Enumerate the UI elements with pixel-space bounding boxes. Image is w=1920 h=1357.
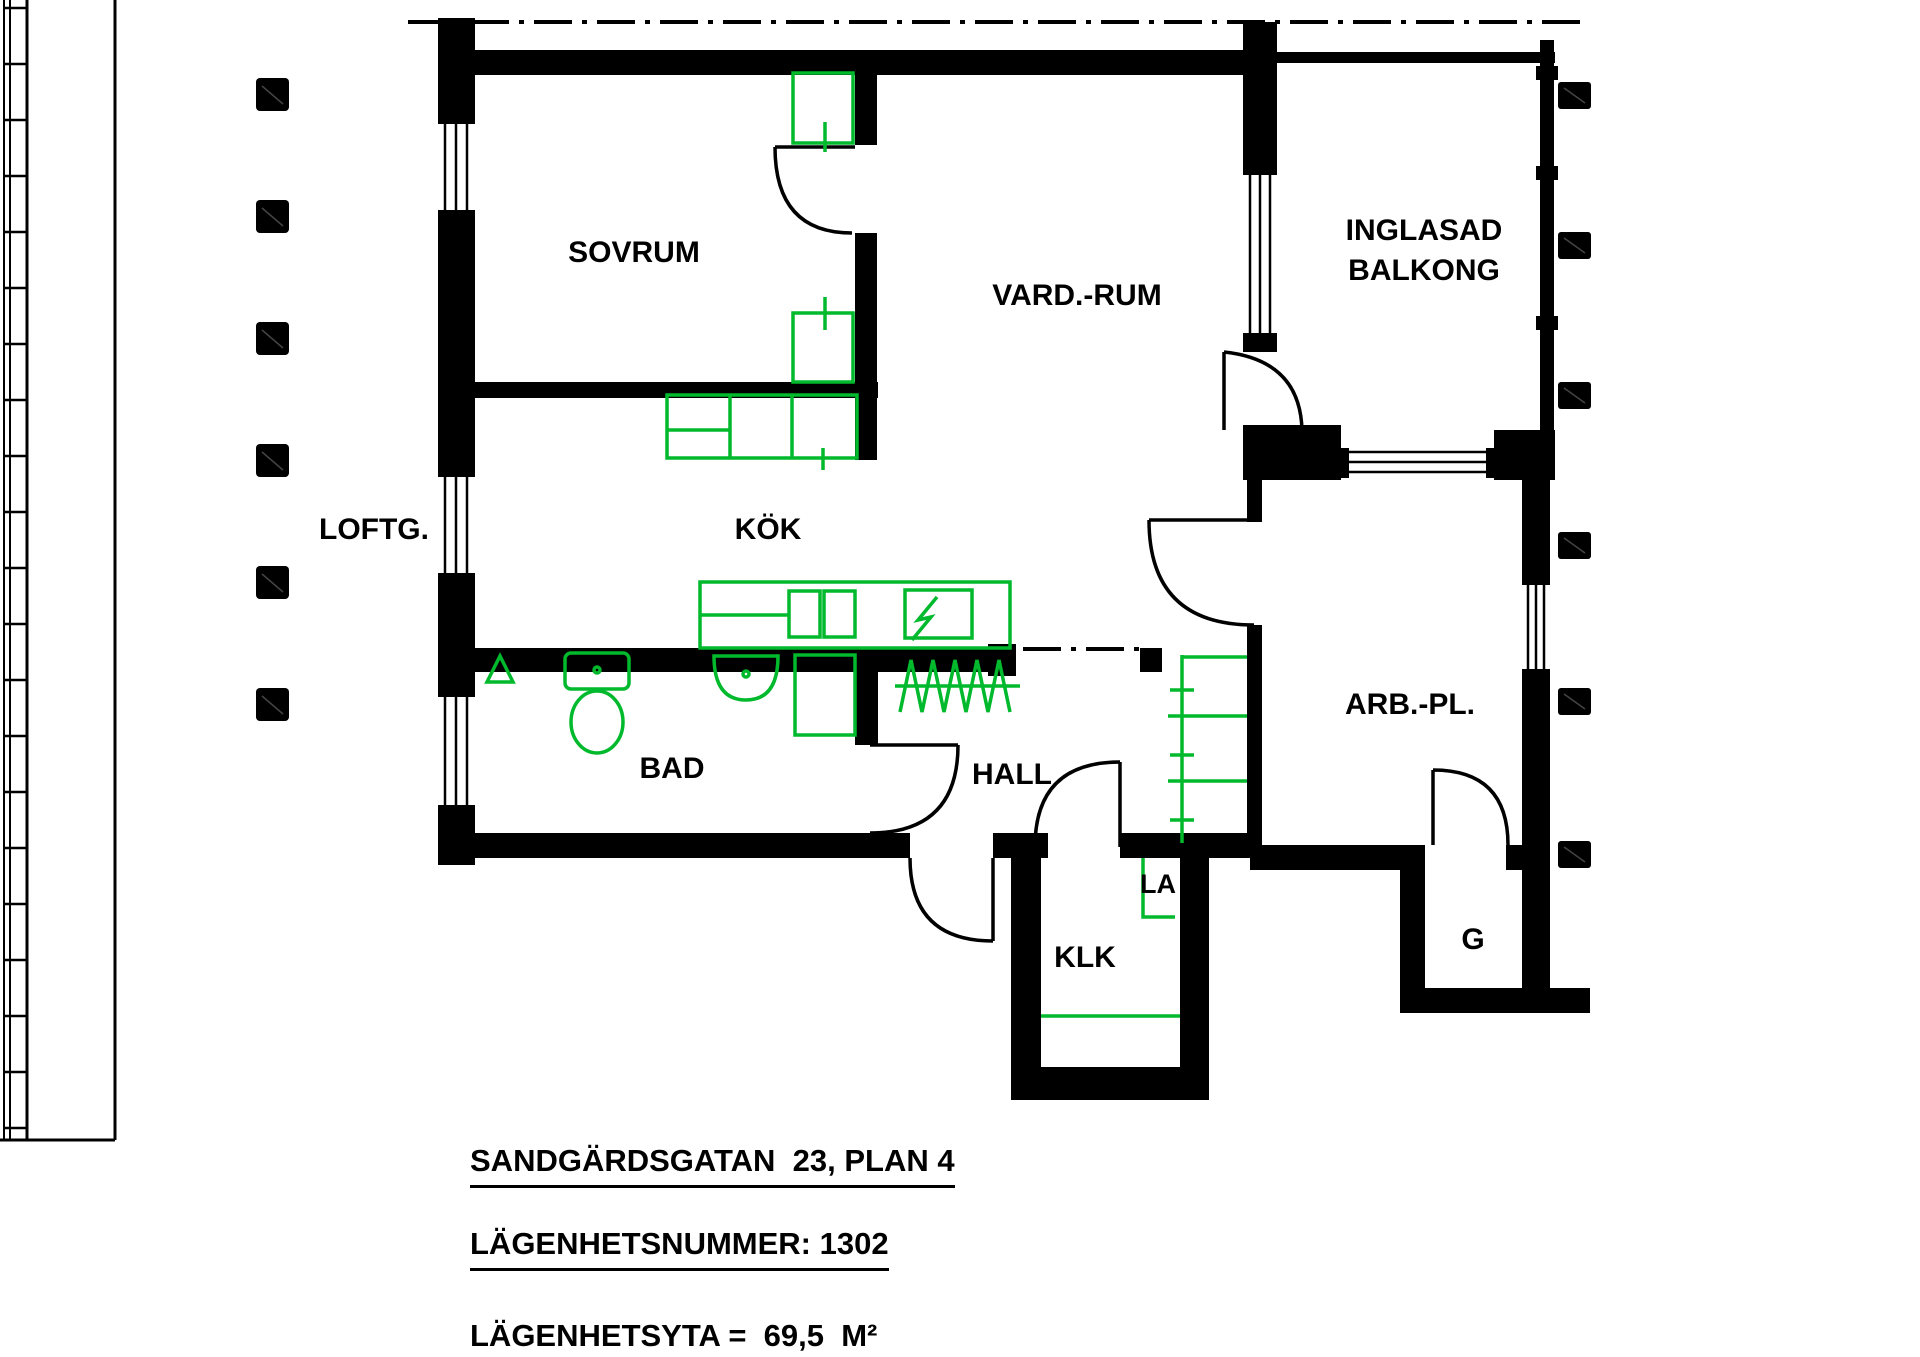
- label-loftgang: LOFTG.: [319, 513, 429, 546]
- plan-title-address: SANDGÄRDSGATAN 23, PLAN 4: [470, 1143, 955, 1188]
- label-balkong: BALKONG: [1348, 254, 1500, 287]
- window-balcony-divider: [1243, 168, 1277, 340]
- label-g: G: [1461, 923, 1484, 956]
- label-la: LA: [1140, 869, 1176, 899]
- floor-plan-svg: SOVRUM VARD.-RUM INGLASAD BALKONG LOFTG.…: [0, 0, 1920, 1357]
- plan-title-apartment-number: LÄGENHETSNUMMER: 1302: [470, 1226, 889, 1271]
- plan-title-area: LÄGENHETSYTA = 69,5 M²: [470, 1318, 877, 1354]
- label-klk: KLK: [1054, 941, 1116, 974]
- label-kok: KÖK: [735, 513, 802, 546]
- label-arbetsplats: ARB.-PL.: [1345, 688, 1475, 721]
- label-hall: HALL: [972, 758, 1052, 791]
- label-vardagsrum: VARD.-RUM: [992, 279, 1161, 312]
- label-sovrum: SOVRUM: [568, 236, 700, 269]
- window-left-1: [438, 117, 475, 217]
- label-inglasad: INGLASAD: [1346, 214, 1503, 247]
- window-left-3: [438, 690, 475, 812]
- stair-treads: [4, 8, 27, 1128]
- label-bad: BAD: [640, 752, 705, 785]
- window-left-2: [438, 470, 475, 580]
